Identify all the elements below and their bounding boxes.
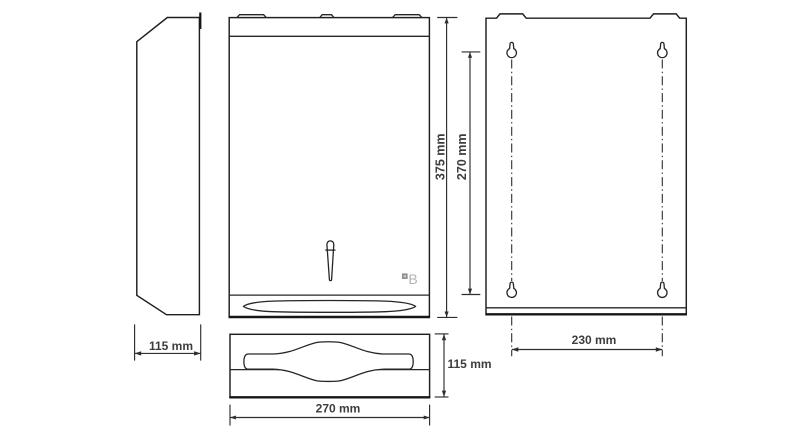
svg-text:115 mm: 115 mm bbox=[448, 357, 492, 371]
svg-text:230 mm: 230 mm bbox=[572, 333, 617, 347]
svg-text:115 mm: 115 mm bbox=[149, 339, 193, 353]
svg-text:B: B bbox=[408, 271, 417, 287]
svg-text:270 mm: 270 mm bbox=[455, 134, 469, 181]
svg-text:375 mm: 375 mm bbox=[433, 134, 447, 181]
svg-text:270 mm: 270 mm bbox=[316, 402, 361, 416]
